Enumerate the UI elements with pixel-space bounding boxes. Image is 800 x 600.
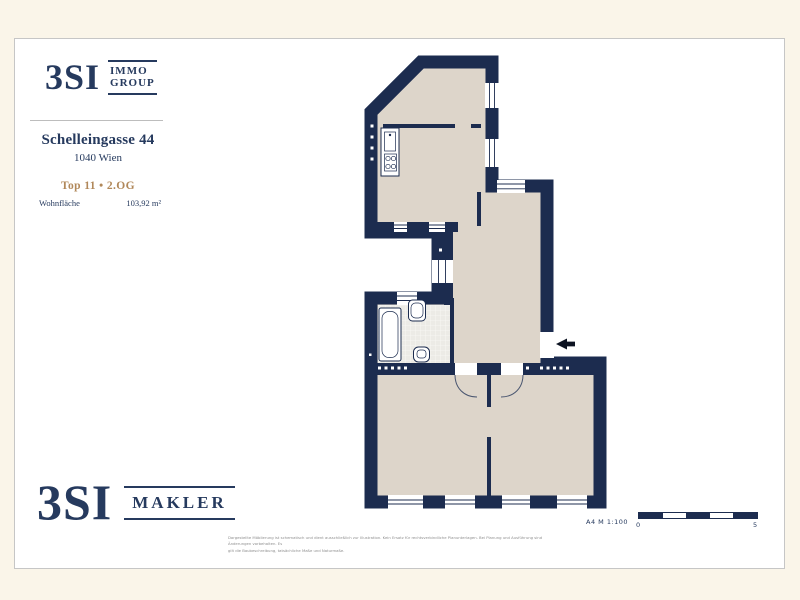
disclaimer-line-1: Dargestellte Möblierung ist schematisch … [228, 535, 563, 548]
page: { "page": { "background_color": "#faf5e9… [0, 0, 800, 600]
scale-start-label: 0 [636, 521, 640, 529]
living-area-label: Wohnfläche [39, 198, 80, 208]
scale-bar-segment [733, 513, 757, 518]
entrance-opening [540, 332, 554, 358]
logo-3si-mark-bottom: 3SI [37, 480, 112, 525]
scale-end-label: 5 [753, 521, 757, 529]
scale-bar-segment [686, 513, 710, 518]
unit-floor-label: Top 11 • 2.OG [23, 180, 173, 192]
kitchen-unit [381, 128, 399, 176]
makler-logo: 3SI MAKLER [37, 480, 235, 525]
disclaimer-text: Dargestellte Möblierung ist schematisch … [228, 535, 563, 554]
logo-3si-mark: 3SI [45, 61, 100, 93]
immo-group-logo: 3SI IMMO GROUP [45, 60, 157, 95]
logo-immo-line: IMMO [110, 65, 155, 77]
living-area-row: Wohnfläche 103,92 m² [39, 198, 161, 208]
listing-header: Schelleingasse 44 1040 Wien Top 11 • 2.O… [23, 132, 173, 192]
scale-note: A4 M 1:100 [586, 518, 628, 526]
scale-bar [638, 512, 758, 519]
living-area-value: 103,92 m² [126, 198, 161, 208]
logo-immo-group-label: IMMO GROUP [108, 60, 157, 95]
address-street: Schelleingasse 44 [23, 132, 173, 149]
entrance-arrow-icon [556, 339, 575, 350]
floor-plan [355, 48, 611, 514]
header-divider [30, 120, 163, 121]
logo-group-line: GROUP [110, 77, 155, 89]
disclaimer-line-2: gilt die Baubeschreibung, tatsächliche M… [228, 548, 563, 554]
address-city: 1040 Wien [23, 152, 173, 164]
bathtub-icon [379, 308, 401, 361]
toilet-icon [414, 347, 430, 362]
logo-makler-label: MAKLER [124, 486, 235, 520]
washbasin-icon [409, 300, 426, 321]
plan-sheet-card: 3SI IMMO GROUP Schelleingasse 44 1040 Wi… [14, 38, 785, 569]
scale-bar-segment [639, 513, 663, 518]
